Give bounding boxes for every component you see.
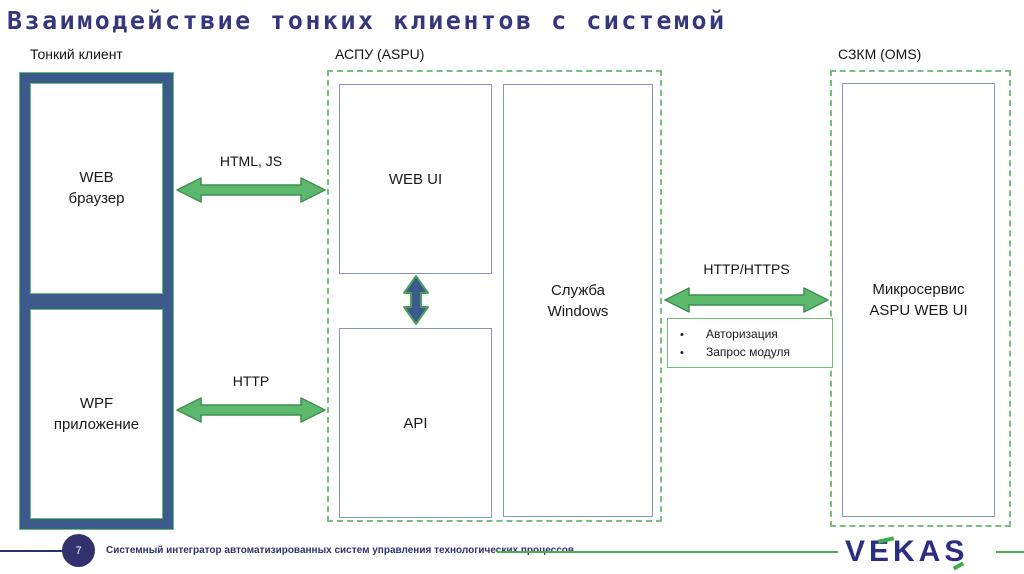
note-label: Авторизация <box>706 327 778 341</box>
http-connection-label: HTTP <box>175 373 327 389</box>
vekas-logo: VEKAS <box>845 537 968 567</box>
slide-canvas: Взаимодействие тонких клиентов с системо… <box>0 0 1024 574</box>
connection-notes-box: Авторизация Запрос модуля <box>667 318 833 368</box>
api-label: API <box>403 413 427 434</box>
web-ui-label: WEB UI <box>389 169 442 190</box>
list-item: Запрос модуля <box>677 345 832 359</box>
windows-service-box: Служба Windows <box>503 84 653 517</box>
webui-api-vertical-arrow-icon <box>402 274 430 326</box>
thin-client-frame: WEB браузер WPF приложение <box>19 72 174 530</box>
bullet-icon <box>677 329 706 341</box>
list-item: Авторизация <box>677 327 832 341</box>
page-number-badge: 7 <box>62 534 95 567</box>
footer-left-line <box>0 550 63 552</box>
footer-green-line-right <box>996 551 1024 553</box>
footer-green-line-left <box>497 551 838 553</box>
page-title: Взаимодействие тонких клиентов с системо… <box>7 6 727 35</box>
wpf-app-box: WPF приложение <box>30 309 163 520</box>
note-label: Запрос модуля <box>706 345 790 359</box>
http-https-double-arrow-icon <box>663 284 830 316</box>
html-js-connection-label: HTML, JS <box>175 153 327 169</box>
oms-section-label: СЗКМ (OMS) <box>838 46 921 62</box>
page-number: 7 <box>75 545 81 557</box>
thin-client-section-label: Тонкий клиент <box>30 46 123 62</box>
aspu-section-label: АСПУ (ASPU) <box>335 46 424 62</box>
microservice-label: Микросервис ASPU WEB UI <box>869 279 967 321</box>
http-double-arrow-icon <box>175 394 327 426</box>
microservice-box: Микросервис ASPU WEB UI <box>842 83 995 517</box>
api-box: API <box>339 328 492 518</box>
windows-service-label: Служба Windows <box>548 280 609 322</box>
bullet-icon <box>677 347 706 359</box>
web-browser-box: WEB браузер <box>30 83 163 294</box>
http-https-connection-label: HTTP/HTTPS <box>663 261 830 277</box>
html-js-double-arrow-icon <box>175 174 327 206</box>
web-ui-box: WEB UI <box>339 84 492 274</box>
web-browser-label: WEB браузер <box>68 167 124 209</box>
wpf-app-label: WPF приложение <box>54 393 139 435</box>
